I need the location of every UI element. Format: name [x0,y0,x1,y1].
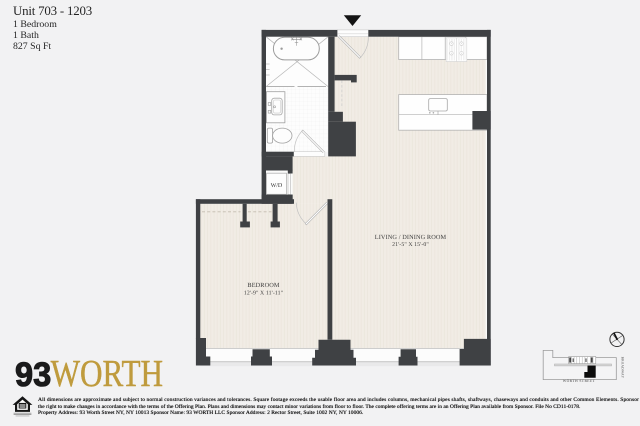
svg-text:21'-5" X 15'-0": 21'-5" X 15'-0" [392,242,429,248]
svg-text:BEDROOM: BEDROOM [247,282,279,289]
svg-text:BROADWAY: BROADWAY [621,357,625,379]
svg-text:93: 93 [15,356,51,394]
svg-text:WORTH: WORTH [51,353,163,395]
svg-text:LIVING / DINING ROOM: LIVING / DINING ROOM [375,234,447,241]
svg-text:W/D: W/D [271,183,283,189]
svg-text:WORTH STREET: WORTH STREET [563,379,596,383]
svg-text:12'-9" X 11'-11": 12'-9" X 11'-11" [244,291,283,297]
